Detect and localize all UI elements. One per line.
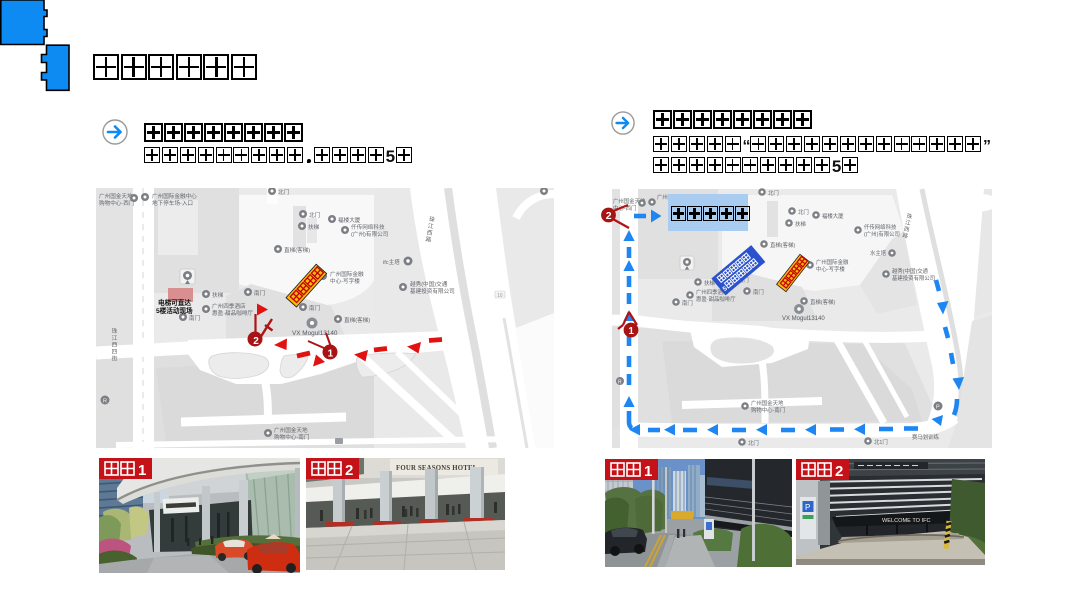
svg-text:扶梯: 扶梯 [212, 291, 224, 299]
svg-text:珠江西四街: 珠江西四街 [110, 327, 117, 362]
svg-text:P: P [936, 405, 940, 411]
svg-text:1: 1 [328, 349, 334, 360]
svg-text:2: 2 [345, 462, 353, 479]
svg-text:直梯(客梯): 直梯(客梯) [284, 246, 310, 254]
svg-text:中心-写字楼: 中心-写字楼 [330, 277, 360, 285]
svg-text:扶梯: 扶梯 [308, 223, 320, 231]
svg-text:VX Mogul13140: VX Mogul13140 [292, 330, 338, 337]
svg-text:广州国金天地: 广州国金天地 [751, 399, 784, 407]
svg-text:2: 2 [835, 463, 843, 480]
svg-text:越秀(中国)交通: 越秀(中国)交通 [892, 267, 929, 275]
svg-text:广州国际金融中心: 广州国际金融中心 [152, 192, 197, 200]
svg-text:基建投资有限公司: 基建投资有限公司 [892, 274, 935, 282]
svg-text:5楼活动现场: 5楼活动现场 [156, 306, 193, 315]
svg-text:中心-写字楼: 中心-写字楼 [816, 265, 845, 273]
svg-text:惠盈·甜品咖啡厅: 惠盈·甜品咖啡厅 [696, 295, 736, 303]
svg-text:广州国金天地: 广州国金天地 [99, 192, 133, 200]
svg-text:赛马划训练: 赛马划训练 [912, 433, 940, 441]
svg-text:基建投资有限公司: 基建投资有限公司 [410, 287, 455, 295]
svg-text:WELCOME TO IFC: WELCOME TO IFC [882, 518, 931, 524]
svg-text:购物中心-南门: 购物中心-南门 [274, 433, 310, 441]
svg-text:电梯可直达: 电梯可直达 [158, 298, 191, 307]
svg-text:广州四季酒店: 广州四季酒店 [212, 302, 246, 310]
svg-text:北门: 北门 [798, 208, 809, 216]
svg-text:北1门: 北1门 [874, 438, 888, 446]
svg-text:褔楼大厦: 褔楼大厦 [822, 212, 844, 220]
svg-text:R: R [618, 380, 622, 386]
svg-text:南门: 南门 [254, 289, 266, 297]
svg-text:广州国金天地: 广州国金天地 [274, 426, 308, 434]
svg-text:VX Mogul13140: VX Mogul13140 [782, 316, 825, 322]
svg-text:(广州)有限公司: (广州)有限公司 [351, 230, 388, 238]
svg-text:10: 10 [497, 293, 503, 299]
svg-text:水主塔: 水主塔 [870, 249, 887, 257]
svg-text:直梯(客梯): 直梯(客梯) [810, 298, 835, 306]
svg-text:1: 1 [138, 462, 146, 479]
svg-text:(广州)有限公司: (广州)有限公司 [864, 230, 900, 238]
svg-text:广州国际金融: 广州国际金融 [330, 270, 364, 278]
svg-text:南门: 南门 [309, 304, 321, 312]
svg-text:购物中心-南门: 购物中心-南门 [751, 406, 785, 414]
svg-text:扶梯: 扶梯 [795, 220, 806, 228]
svg-text:2: 2 [253, 336, 259, 347]
svg-text:直梯(客梯): 直梯(客梯) [344, 316, 370, 324]
svg-text:惠盈·甜品咖啡厅: 惠盈·甜品咖啡厅 [212, 309, 253, 317]
svg-text:南门: 南门 [682, 299, 693, 307]
svg-text:南门: 南门 [189, 314, 201, 322]
svg-text:仟传网络科技: 仟传网络科技 [864, 223, 897, 231]
svg-text:P: P [805, 503, 810, 512]
svg-text:南门: 南门 [753, 288, 764, 296]
svg-text:直梯(客梯): 直梯(客梯) [770, 241, 795, 249]
svg-text:北门: 北门 [748, 439, 759, 447]
svg-text:北门: 北门 [309, 211, 321, 219]
svg-text:仟传网络科技: 仟传网络科技 [351, 223, 385, 231]
svg-text:购物中心-西门: 购物中心-西门 [99, 199, 135, 207]
svg-text:北门: 北门 [768, 189, 779, 197]
svg-text:广州国际金融: 广州国际金融 [816, 258, 849, 266]
svg-text:1: 1 [644, 463, 652, 480]
svg-text:越秀(中国)交通: 越秀(中国)交通 [410, 280, 448, 288]
svg-text:2: 2 [606, 210, 612, 222]
svg-text:1: 1 [628, 326, 634, 337]
svg-text:ifc主塔: ifc主塔 [383, 258, 400, 266]
svg-text:R: R [103, 399, 107, 405]
svg-text:地下停车场-入口: 地下停车场-入口 [152, 199, 193, 207]
svg-text:褔楼大厦: 褔楼大厦 [338, 216, 361, 224]
svg-text:北门: 北门 [278, 188, 290, 196]
